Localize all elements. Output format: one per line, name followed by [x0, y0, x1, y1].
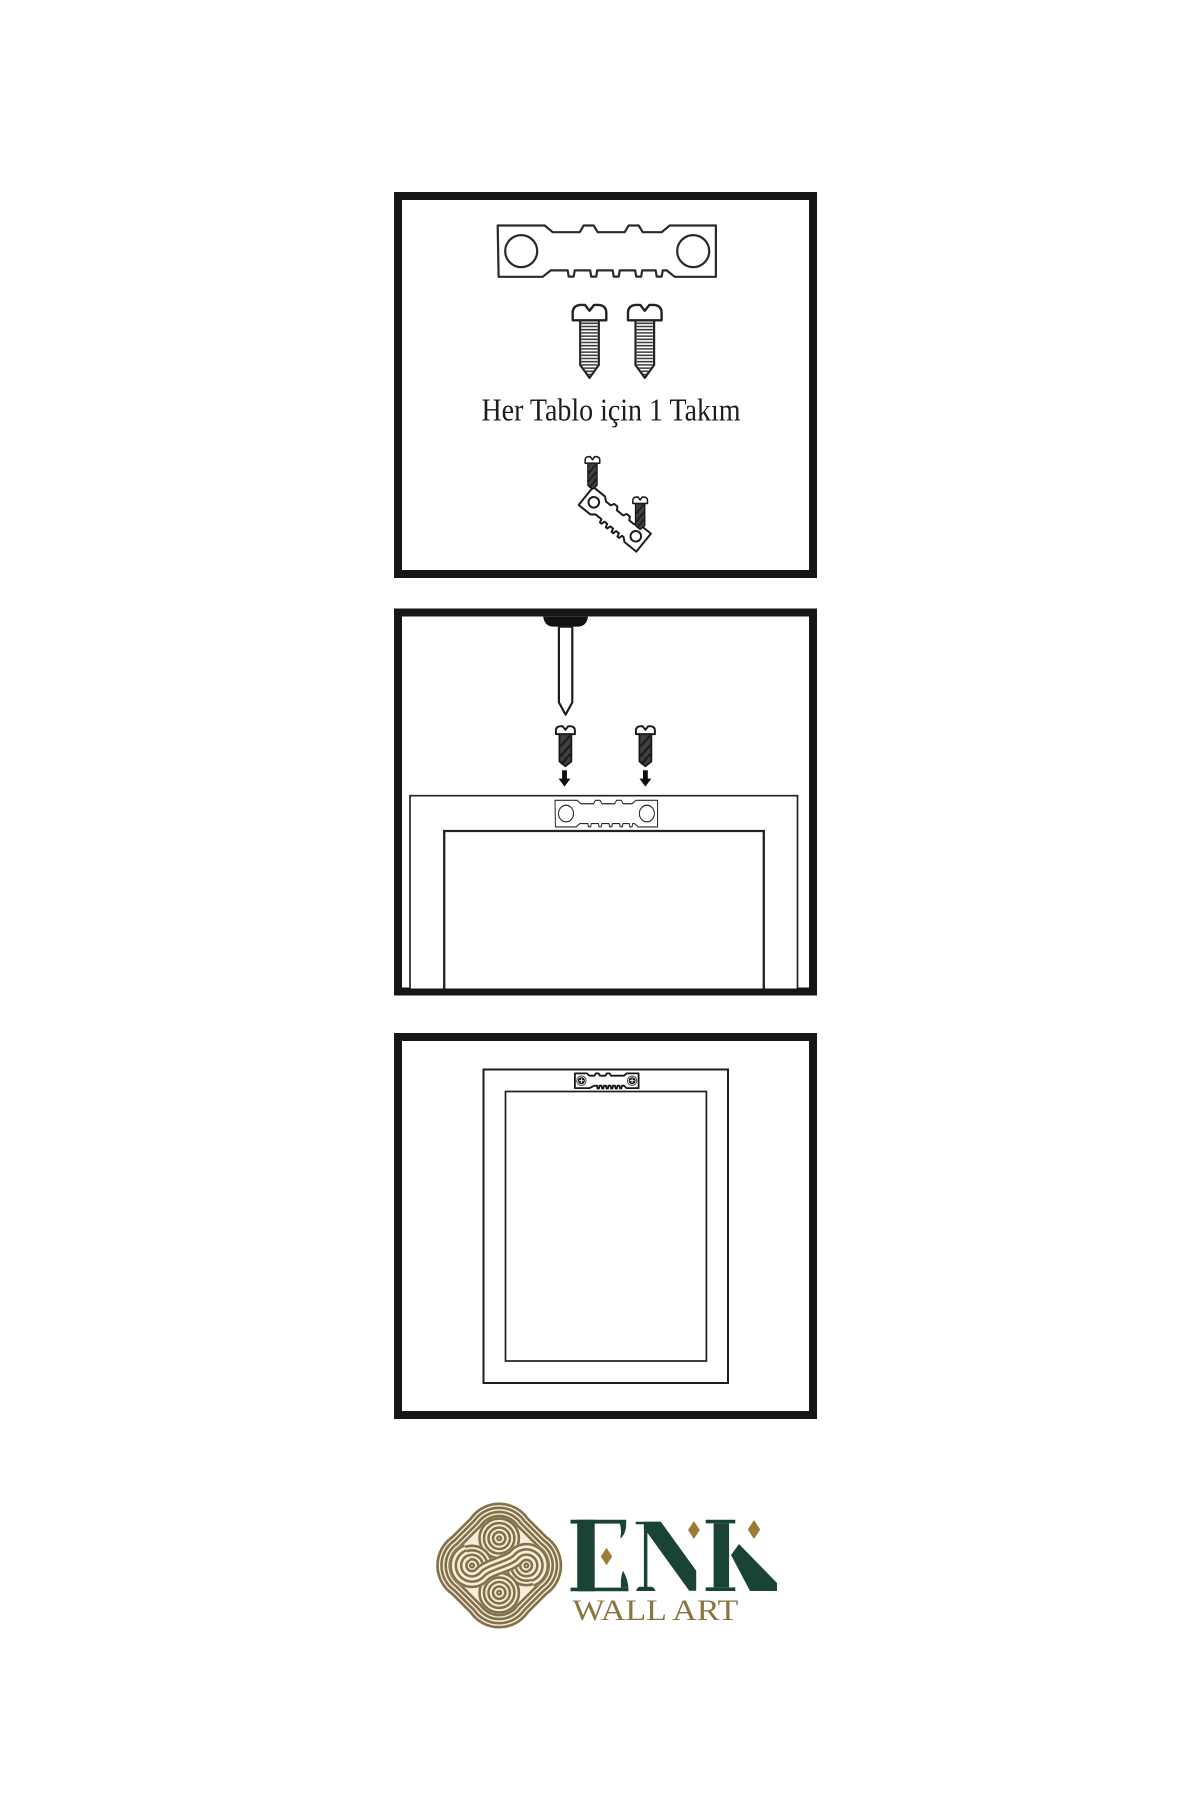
svg-text:Her Tablo için 1 Takım: Her Tablo için 1 Takım — [482, 393, 741, 428]
svg-text:WALL ART: WALL ART — [573, 1594, 739, 1627]
